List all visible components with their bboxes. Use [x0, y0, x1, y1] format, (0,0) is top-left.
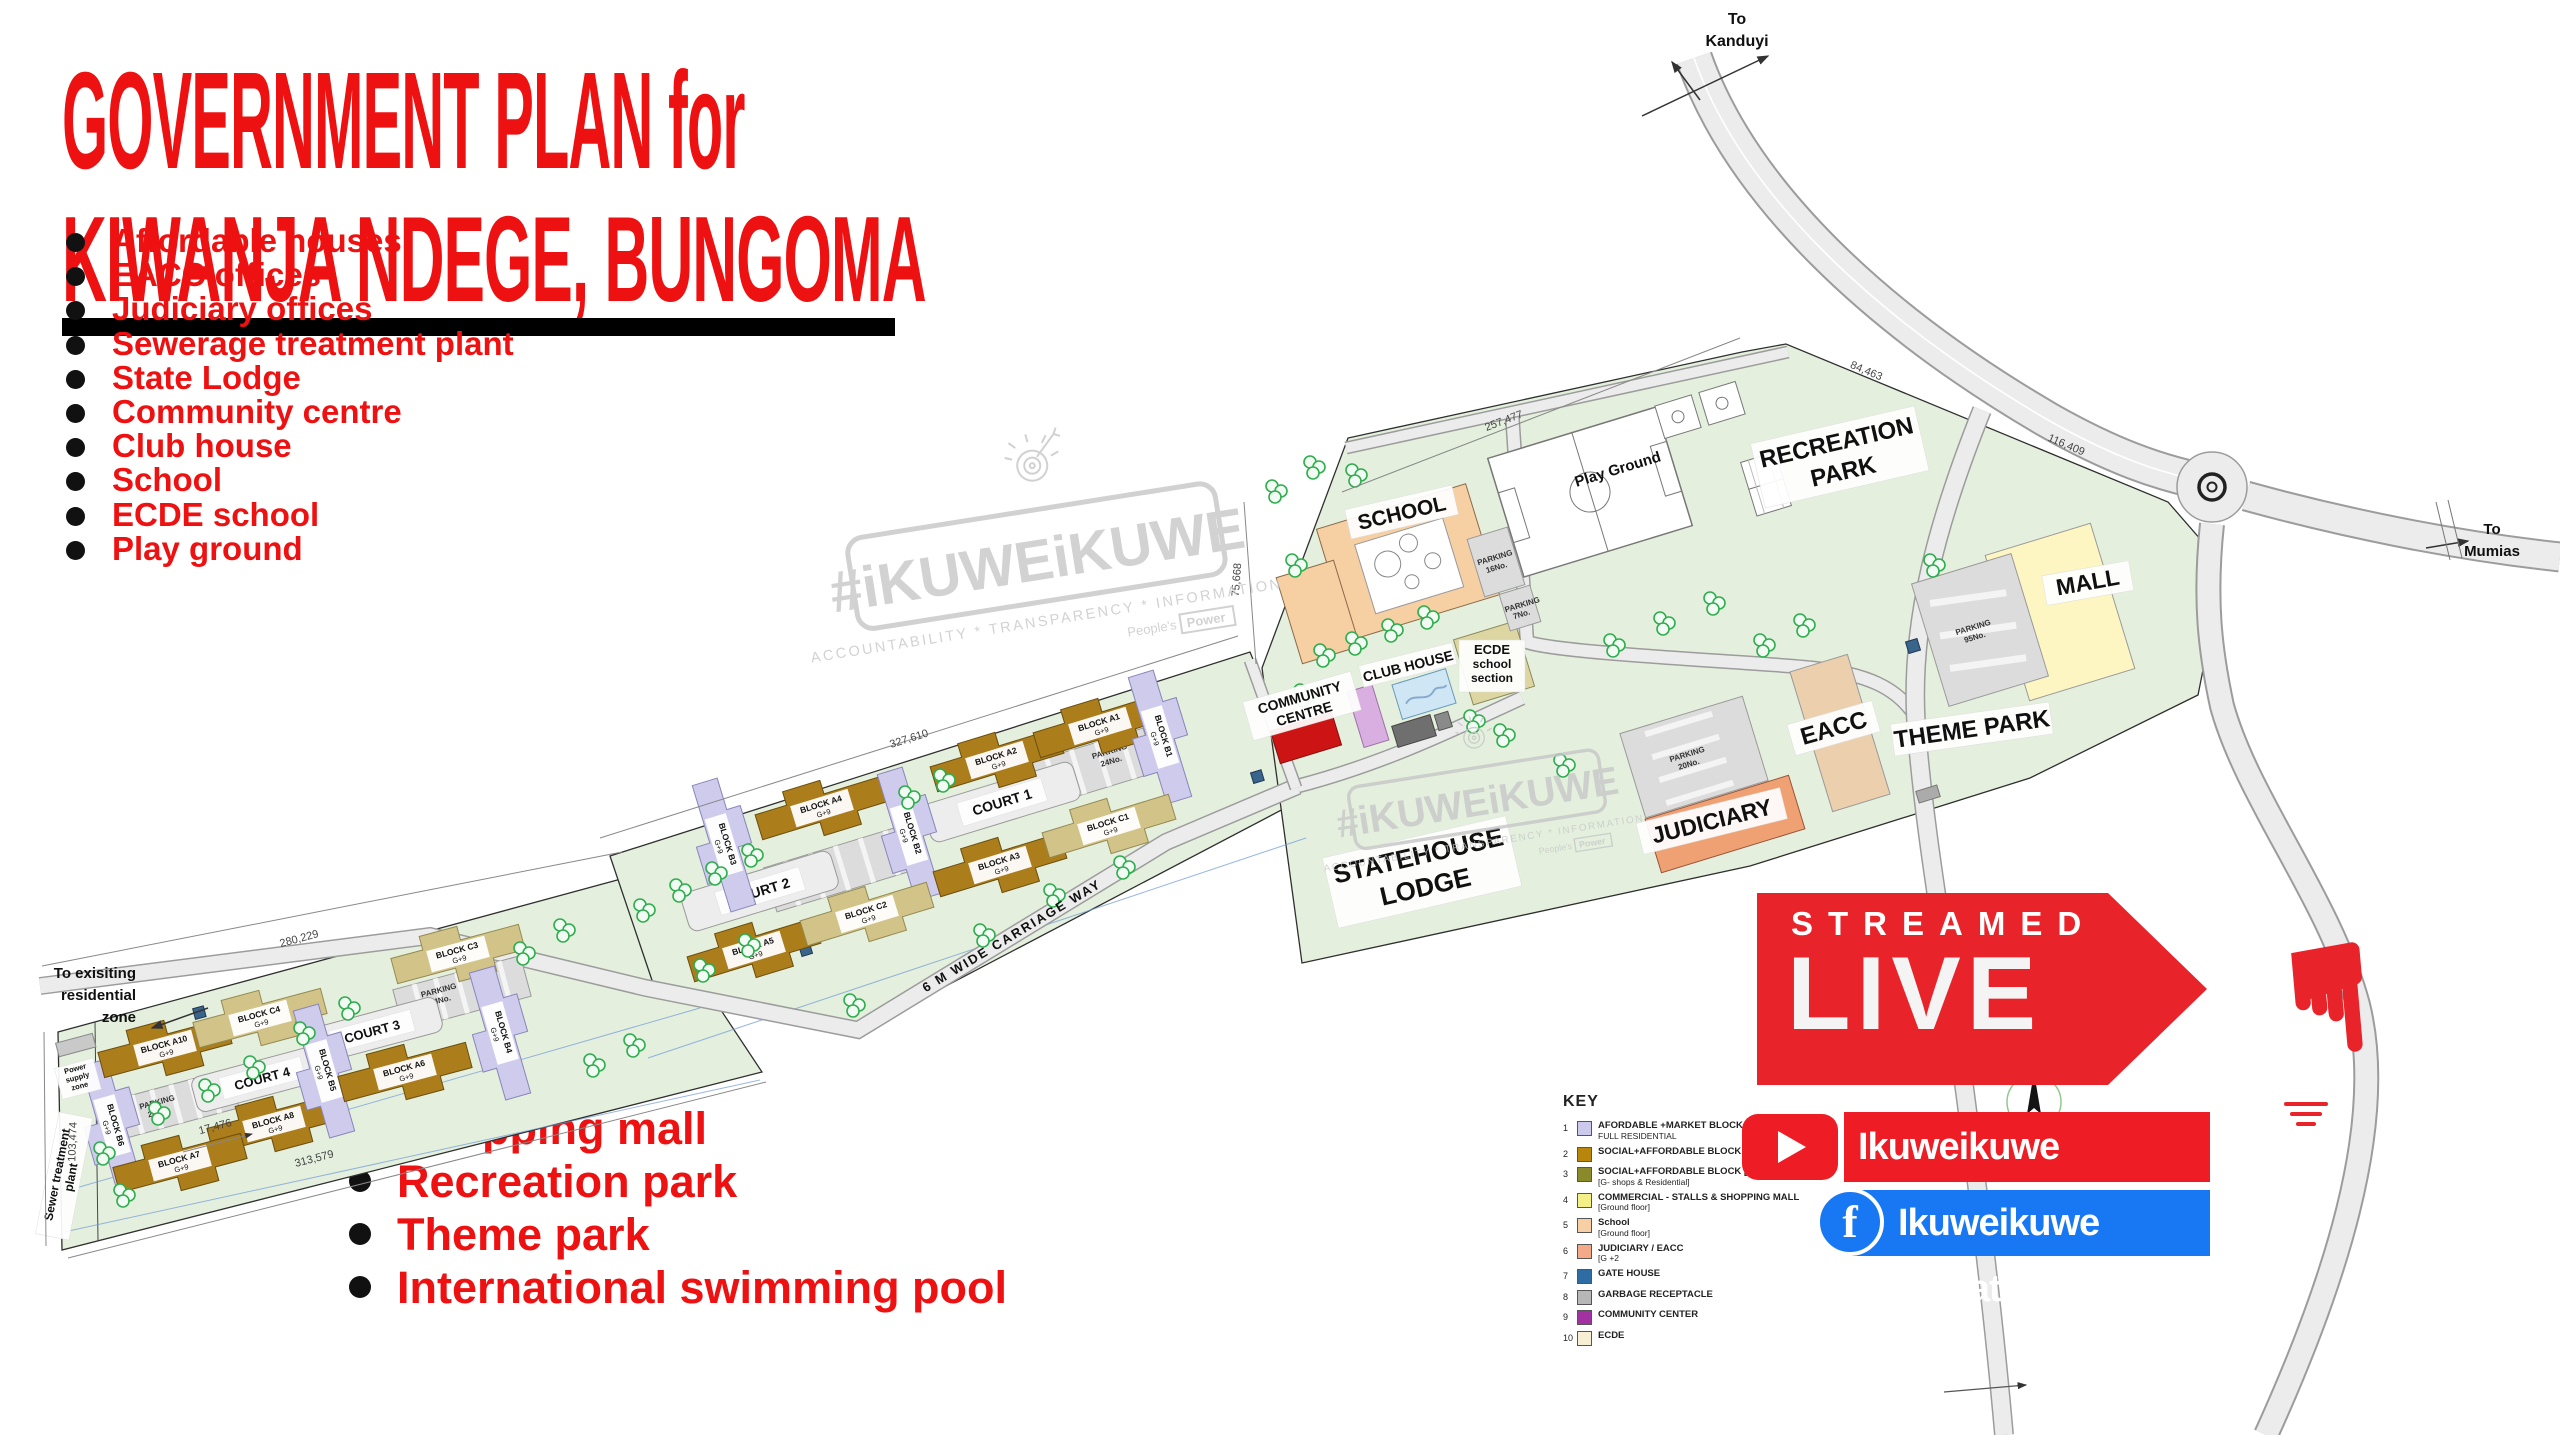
key-row: 4COMMERCIAL - STALLS & SHOPPING MALL[Gro…: [1563, 1193, 1833, 1213]
facebook-icon: f: [1816, 1188, 1884, 1256]
key-row: 6JUDICIARY / EACC[G +2: [1563, 1244, 1833, 1264]
key-swatch: [1577, 1244, 1592, 1259]
svg-text:Kanduyi: Kanduyi: [1705, 33, 1768, 50]
key-row: 5School[Ground floor]: [1563, 1218, 1833, 1238]
key-swatch: [1577, 1147, 1592, 1162]
stream-wave: [2284, 1102, 2328, 1106]
key-row: 8GARBAGE RECEPTACLE: [1563, 1290, 1833, 1305]
stream-wave: [2296, 1122, 2316, 1126]
key-swatch: [1577, 1193, 1592, 1208]
youtube-channel-banner: Ikuweikuwe Updates: [1844, 1112, 2210, 1182]
bulb-doodle-icon: [1001, 427, 1066, 484]
svg-text:Mumias: Mumias: [2464, 543, 2520, 560]
pointing-hand-icon: ☛: [2220, 925, 2414, 1110]
key-row: 9COMMUNITY CENTER: [1563, 1310, 1833, 1325]
svg-text:People's: People's: [1126, 617, 1178, 640]
svg-text:327,610: 327,610: [888, 727, 930, 750]
live-label: LIVE: [1787, 945, 2207, 1044]
facebook-page-banner: Ikuweikuwe Updates: [1852, 1190, 2210, 1256]
key-swatch: [1577, 1167, 1592, 1182]
svg-text:To: To: [1728, 11, 1747, 28]
roundabout: [2177, 452, 2247, 522]
svg-text:residential: residential: [61, 987, 136, 1004]
svg-text:To: To: [2483, 521, 2500, 538]
key-swatch: [1577, 1121, 1592, 1136]
key-title: KEY: [1563, 1093, 1833, 1111]
key-swatch: [1577, 1310, 1592, 1325]
key-row: 10ECDE: [1563, 1331, 1833, 1346]
key-swatch: [1577, 1218, 1592, 1233]
svg-text:To exisiting: To exisiting: [54, 965, 136, 982]
svg-text:ECDE: ECDE: [1474, 642, 1510, 657]
svg-text:section: section: [1471, 671, 1513, 685]
youtube-icon: [1742, 1114, 1838, 1180]
survey-arrow: [1944, 1385, 2026, 1392]
key-swatch: [1577, 1290, 1592, 1305]
label-ecde-school-section: ECDEschoolsection: [1459, 640, 1525, 692]
svg-text:zone: zone: [102, 1009, 136, 1026]
key-swatch: [1577, 1331, 1592, 1346]
watermark-ikuweikuwe-1: #iKUWEiKUWE ACCOUNTABILITY * TRANSPARENC…: [781, 396, 1287, 691]
stream-wave: [2290, 1112, 2322, 1116]
svg-text:school: school: [1473, 657, 1512, 671]
key-swatch: [1577, 1269, 1592, 1284]
key-row: 7GATE HOUSE: [1563, 1269, 1833, 1284]
svg-text:103,474: 103,474: [66, 1122, 79, 1162]
